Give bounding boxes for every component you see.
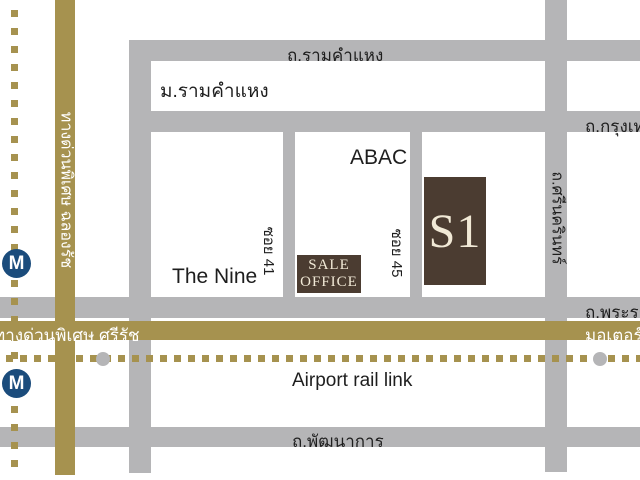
- s1-project-label: S1: [429, 204, 482, 259]
- metro-dotted-line: [11, 10, 18, 476]
- sale-office-line2: OFFICE: [300, 274, 358, 291]
- road-krungthep-kreetha: [129, 111, 640, 132]
- label-si-rat-expressway: ทางด่วนพิเศษ ศรีรัช: [0, 322, 140, 349]
- rail-station-dot-left: [96, 352, 110, 366]
- label-phatthanakan-road: ถ.พัฒนาการ: [292, 428, 384, 455]
- rail-station-dot-right: [593, 352, 607, 366]
- metro-letter: M: [9, 373, 25, 395]
- label-chalong-rat-expressway: ทางด่วนพิเศษ ฉลองรัช: [54, 112, 79, 268]
- label-srinagarindra-road: ถ.ศรีนครินทร์: [545, 171, 570, 264]
- road-soi-41: [283, 111, 295, 318]
- road-soi-45: [410, 111, 422, 318]
- metro-station-icon-bottom: M: [2, 369, 31, 398]
- metro-letter: M: [9, 253, 25, 275]
- metro-station-icon-top: M: [2, 249, 31, 278]
- road-rama9: [0, 297, 640, 318]
- sale-office-line1: SALE: [308, 257, 350, 274]
- s1-project-box: S1: [424, 177, 486, 285]
- label-the-nine: The Nine: [172, 265, 257, 289]
- location-map: M M SALE OFFICE S1 ถ.รามคำแหง ม.รามคำแหง…: [0, 0, 640, 480]
- road-ramkhamhaeng: [129, 40, 640, 61]
- label-soi-45: ซอย 45: [385, 229, 409, 278]
- label-ramkhamhaeng-road: ถ.รามคำแหง: [287, 42, 383, 69]
- label-rama9-road: ถ.พระราม 9: [585, 299, 640, 326]
- label-soi-41: ซอย 41: [257, 227, 281, 276]
- label-krungthep-kreetha-road: ถ.กรุงเทพกรีฑา: [585, 113, 640, 140]
- label-ramkhamhaeng-university: ม.รามคำแหง: [160, 76, 269, 106]
- label-airport-rail-link: Airport rail link: [292, 370, 412, 392]
- label-abac: ABAC: [350, 146, 407, 170]
- label-motorway: มอเตอร์เวย์: [585, 322, 640, 349]
- road-vertical-left: [129, 40, 151, 473]
- sale-office-box: SALE OFFICE: [297, 255, 361, 293]
